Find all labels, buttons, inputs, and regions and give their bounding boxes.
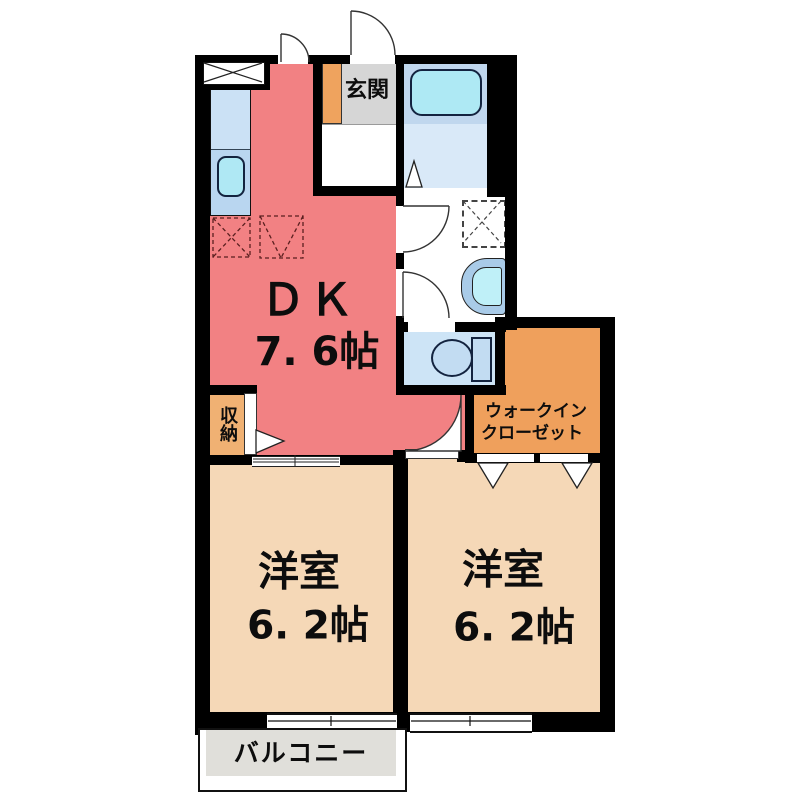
wall-washroom-left	[396, 188, 404, 206]
closet-door-opening	[540, 454, 588, 462]
dk-floor	[396, 395, 465, 453]
wall-closet-left	[465, 393, 474, 455]
kitchen-door-opening	[278, 55, 308, 64]
wall-washroom-right	[505, 195, 517, 330]
floorplan: ＤＫ 7. 6帖 玄関 収納 ウォークイン クローゼット 洋室 6. 2帖 洋室…	[0, 0, 800, 800]
dk-label: ＤＫ	[261, 279, 357, 323]
wall-door-jamb	[393, 450, 405, 462]
toilet-tank-icon	[471, 337, 492, 382]
closet-door-opening	[477, 454, 534, 462]
bedroom-left-size-label: 6. 2帖	[247, 607, 369, 646]
storage-label: 収納	[218, 406, 236, 442]
entrance-door-opening	[350, 55, 395, 64]
sliding-door	[252, 456, 340, 467]
toilet-door-opening	[408, 322, 455, 332]
shoe-cabinet	[322, 62, 342, 124]
walk-in-closet-label-line2: クローゼット	[481, 426, 583, 443]
walk-in-closet-label-line1: ウォークイン	[485, 404, 587, 421]
door-leaf	[405, 449, 459, 459]
wall-between-bedrooms	[393, 455, 408, 715]
washroom-door2-swing-icon	[403, 272, 449, 318]
range-hood-icon	[203, 62, 265, 85]
wall-bath-left	[396, 62, 404, 188]
entrance-door-swing-icon	[351, 11, 395, 55]
wall-left	[195, 55, 210, 735]
wall-door-jamb	[457, 450, 473, 462]
bedroom-right-size-label: 6. 2帖	[453, 609, 575, 648]
storage-door-leaf	[244, 393, 257, 455]
wall-toilet-bottom	[396, 385, 506, 395]
dk-size-label: 7. 6帖	[255, 332, 380, 372]
bathroom-door-opening	[404, 188, 455, 201]
bathtub-icon	[410, 69, 482, 116]
dk-floor	[255, 385, 396, 455]
window-right	[410, 713, 532, 733]
kitchen-sink-icon	[217, 156, 245, 197]
wall-bath-right	[487, 55, 517, 197]
washing-machine-space	[462, 200, 506, 248]
balcony-label: バルコニー	[234, 741, 369, 766]
genkan-label: 玄関	[345, 80, 389, 102]
wall-right	[600, 317, 615, 730]
kitchen-worktop	[211, 86, 250, 150]
toilet-bowl-icon	[431, 339, 473, 377]
washroom-door-swing-icon	[403, 206, 449, 252]
wall-genkan-bottom	[313, 186, 403, 196]
bedroom-right-label: 洋室	[462, 550, 544, 591]
wall-toilet-right	[495, 317, 505, 395]
washbasin-bowl-icon	[472, 267, 502, 306]
wall-closet-top	[495, 317, 615, 328]
wall-genkan-left	[313, 62, 322, 195]
wall-washroom-left	[396, 253, 404, 269]
bedroom-left-label: 洋室	[258, 552, 340, 593]
